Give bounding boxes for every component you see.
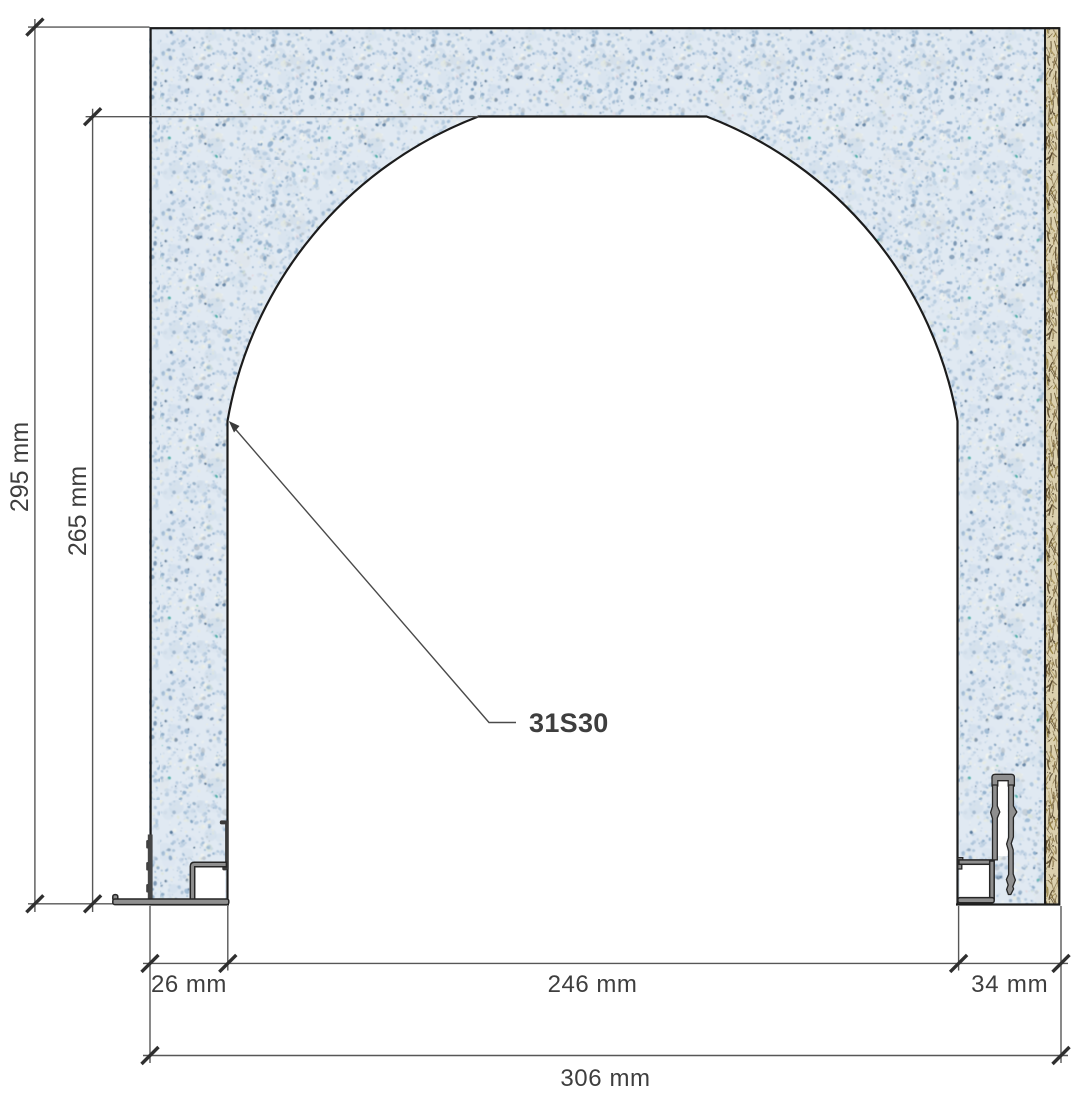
svg-text:306 mm: 306 mm	[560, 1065, 650, 1092]
svg-text:31S30: 31S30	[529, 708, 609, 738]
svg-text:26 mm: 26 mm	[151, 971, 227, 998]
svg-text:265 mm: 265 mm	[64, 466, 92, 556]
svg-text:246 mm: 246 mm	[548, 971, 638, 998]
svg-text:295 mm: 295 mm	[6, 422, 34, 512]
svg-text:34 mm: 34 mm	[971, 971, 1048, 998]
